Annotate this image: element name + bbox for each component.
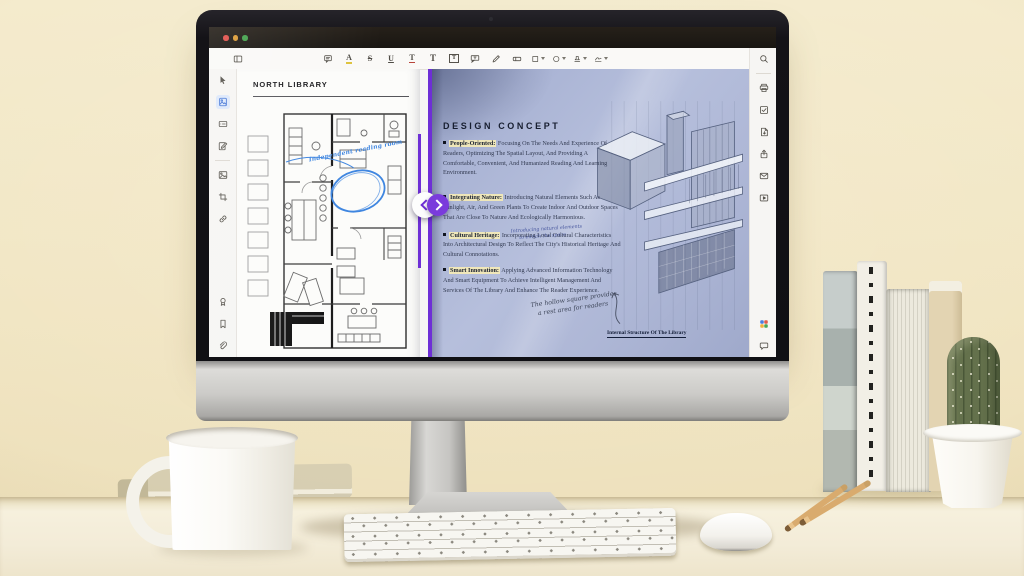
print-icon[interactable] <box>757 81 771 95</box>
share-icon[interactable] <box>757 147 771 161</box>
slideshow-icon[interactable] <box>757 191 771 205</box>
page-title: NORTH LIBRARY <box>253 80 328 89</box>
sidebar-separator <box>215 160 230 161</box>
feedback-chat-icon[interactable] <box>757 339 771 353</box>
imac-camera <box>489 17 493 21</box>
bookmark-icon[interactable] <box>216 317 230 331</box>
dropdown-caret-icon <box>583 57 587 60</box>
figure-caption: Internal Structure Of The Library <box>607 330 686 338</box>
link-icon[interactable] <box>216 212 230 226</box>
eraser-icon[interactable] <box>510 52 524 66</box>
annotation-toolbar: ASUTTT <box>209 48 776 70</box>
title-rule <box>253 96 409 97</box>
bullet-lead: Cultural Heritage: <box>449 232 500 239</box>
note-comment-icon[interactable] <box>321 52 335 66</box>
bullet-lead: Smart Innovation: <box>449 267 500 274</box>
mouse <box>700 513 772 551</box>
book <box>823 271 858 492</box>
bullet-lead: Integrating Nature: <box>449 194 503 201</box>
chevron-right-icon <box>431 199 442 210</box>
zoom-button[interactable] <box>242 35 248 41</box>
signature-icon[interactable] <box>594 52 608 66</box>
squiggly-underline-icon[interactable]: T <box>405 52 419 66</box>
document-page-left: NORTH LIBRARY <box>236 69 420 357</box>
text-callout-icon[interactable] <box>468 52 482 66</box>
imac-chin <box>196 361 789 421</box>
keyboard <box>344 508 677 562</box>
insert-image-icon[interactable] <box>216 168 230 182</box>
underline-icon[interactable]: U <box>384 52 398 66</box>
attachment-icon[interactable] <box>216 339 230 353</box>
concept-bullet: People-Oriented: Focusing On The Needs A… <box>443 139 621 178</box>
bullet-lead: People-Oriented: <box>449 140 496 147</box>
pdf-app-window: ASUTTT NORTH LIBRARY <box>209 27 776 357</box>
text-box-icon[interactable]: T <box>447 52 461 66</box>
concept-bullet: Cultural Heritage: Incorporating Local C… <box>443 231 621 260</box>
select-cursor-icon[interactable] <box>216 73 230 87</box>
compare-slider-handle[interactable] <box>412 192 449 219</box>
search-icon[interactable] <box>757 52 771 66</box>
highlight-text-icon[interactable]: A <box>342 52 356 66</box>
right-sidebar <box>749 48 776 357</box>
titlebar <box>209 27 776 48</box>
minimize-button[interactable] <box>233 35 239 41</box>
bullet-square-icon <box>443 233 446 236</box>
page-thumbnails-icon[interactable] <box>216 95 230 109</box>
coffee-mug <box>166 434 298 550</box>
stamp-icon[interactable] <box>573 52 587 66</box>
pencil-icon[interactable] <box>489 52 503 66</box>
bullet-list: People-Oriented: Focusing On The Needs A… <box>443 139 621 295</box>
concept-bullet: Smart Innovation: Applying Advanced Info… <box>443 266 621 295</box>
edit-content-icon[interactable] <box>216 139 230 153</box>
mug-rim <box>166 427 298 449</box>
dropdown-caret-icon <box>541 57 545 60</box>
cactus <box>947 337 1000 437</box>
email-icon[interactable] <box>757 169 771 183</box>
dropdown-caret-icon <box>604 57 608 60</box>
shapes-icon[interactable] <box>531 52 545 66</box>
form-field-icon[interactable] <box>216 117 230 131</box>
bullet-square-icon <box>443 141 446 144</box>
export-file-icon[interactable] <box>757 125 771 139</box>
plant-pot-rim <box>923 424 1022 442</box>
concept-bullet: Integrating Nature: Introducing Natural … <box>443 193 621 222</box>
panel-toggle-icon[interactable] <box>231 52 245 66</box>
strikethrough-icon[interactable]: S <box>363 52 377 66</box>
stamp-seal-icon[interactable] <box>216 295 230 309</box>
add-text-icon[interactable]: T <box>426 52 440 66</box>
crop-page-icon[interactable] <box>216 190 230 204</box>
book <box>857 261 887 491</box>
book <box>886 289 931 492</box>
desk-scene: ASUTTT NORTH LIBRARY <box>0 0 1024 576</box>
document-page-right: DESIGN CONCEPT People-Oriented: Focusing… <box>431 69 749 357</box>
ai-assistant-icon[interactable] <box>757 317 771 331</box>
freehand-shape-icon[interactable] <box>552 52 566 66</box>
dropdown-caret-icon <box>562 57 566 60</box>
close-button[interactable] <box>223 35 229 41</box>
bullet-square-icon <box>443 268 446 271</box>
approve-check-icon[interactable] <box>757 103 771 117</box>
left-sidebar <box>209 69 237 357</box>
ink-annotation-circle <box>286 157 389 218</box>
section-heading: DESIGN CONCEPT <box>443 121 560 131</box>
